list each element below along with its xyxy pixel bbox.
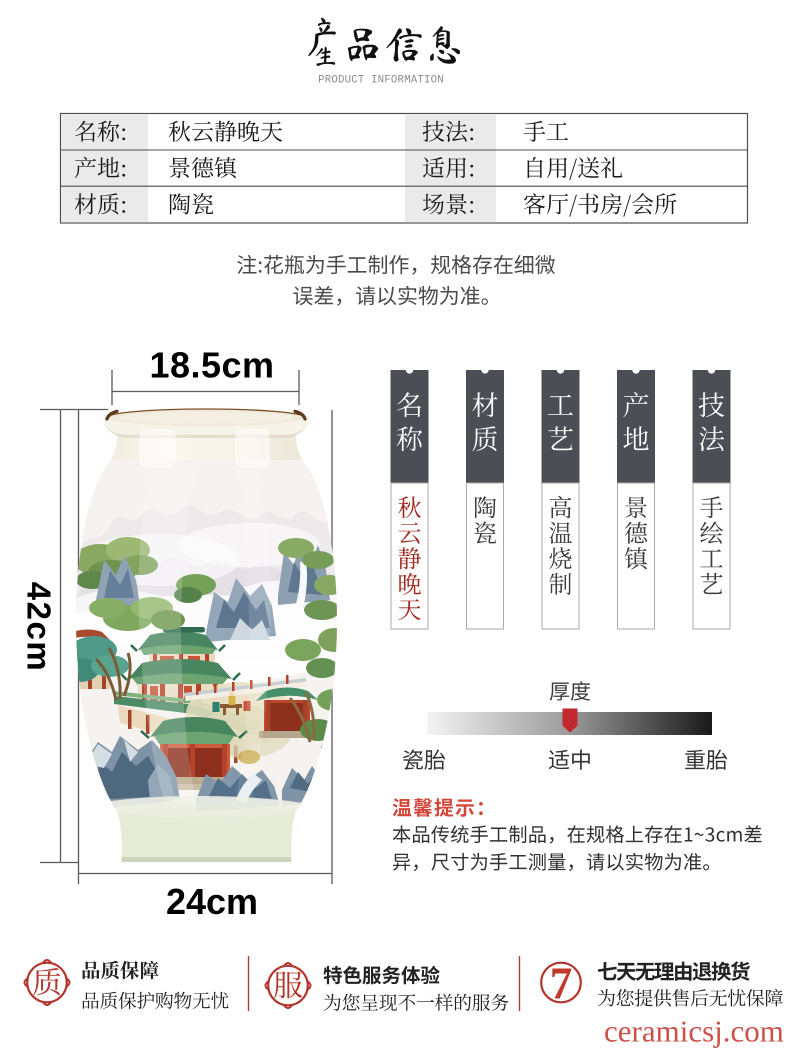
- svg-text:24cm: 24cm: [166, 881, 258, 922]
- svg-text:18.5cm: 18.5cm: [149, 345, 274, 386]
- svg-text:ceramicsj.com: ceramicsj.com: [604, 1014, 784, 1049]
- svg-text:7: 7: [550, 959, 573, 1009]
- svg-text:PRODUCT INFORMATION: PRODUCT INFORMATION: [318, 75, 444, 87]
- svg-text:42cm: 42cm: [21, 582, 58, 672]
